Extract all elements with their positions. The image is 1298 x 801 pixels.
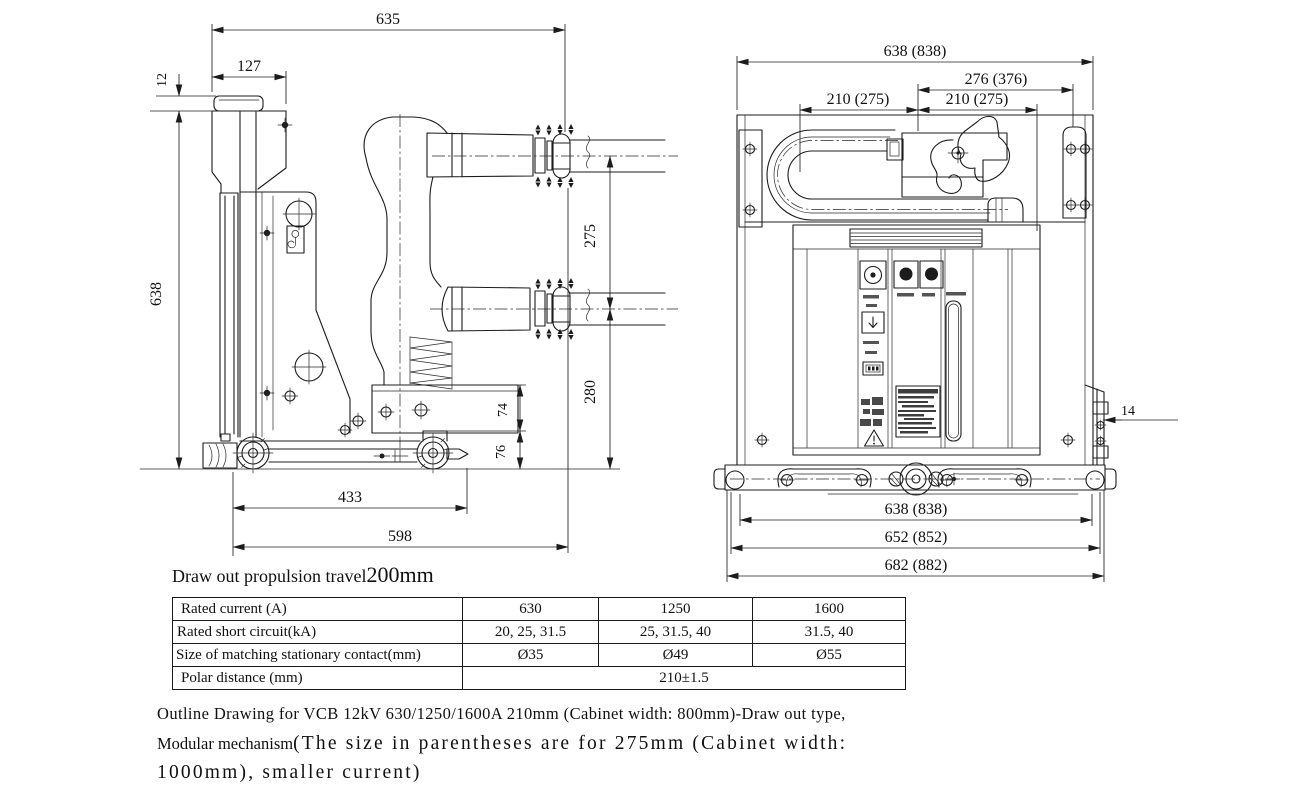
dim-base-mid: 652 (852): [885, 529, 948, 546]
caption-line-2-prefix: Modular mechanism: [157, 734, 293, 753]
side-view: 635 127 12 638 275 280 74 76 433 598: [140, 11, 678, 556]
latch-hook: [931, 140, 962, 193]
side-frame: [212, 96, 352, 437]
wheel: [233, 433, 273, 473]
table-row: Rated short circuit(kA) 20, 25, 31.5 25,…: [173, 621, 906, 644]
lower-bushing: [430, 278, 678, 340]
dim-lower-span: 280: [582, 380, 599, 404]
bumper: [203, 434, 237, 468]
front-dimensions: 638 (838) 276 (376) 210 (275) 210 (275) …: [727, 43, 1178, 582]
pole-assembly: [364, 114, 447, 448]
front-base: [714, 463, 1116, 495]
handle: [778, 469, 871, 487]
cell-value: Ø35: [463, 644, 599, 667]
table-row: Size of matching stationary contact(mm) …: [173, 644, 906, 667]
frame-bolts: [260, 118, 292, 400]
upper-bushing: [427, 124, 678, 188]
indicator-slot: [946, 301, 961, 441]
dim-height: 638: [148, 282, 165, 306]
cell-value: 630: [463, 598, 599, 621]
caption-line-1: Outline Drawing for VCB 12kV 630/1250/16…: [157, 704, 847, 724]
table-row: Rated current (A) 630 1250 1600: [173, 598, 906, 621]
drawing-caption: Outline Drawing for VCB 12kV 630/1250/16…: [157, 704, 847, 784]
dim-overall-width: 638 (838): [884, 43, 947, 60]
control-panel: [793, 225, 1040, 455]
vent-grille: [850, 229, 982, 247]
drawing-canvas: 635 127 12 638 275 280 74 76 433 598: [0, 0, 1298, 595]
selector-knob: [860, 261, 886, 289]
button-labels: [897, 292, 966, 297]
heater-loop: [767, 130, 1023, 222]
dim-base-inner: 638 (838): [885, 501, 948, 518]
front-view: 638 (838) 276 (376) 210 (275) 210 (275) …: [714, 43, 1178, 582]
dim-lift-offset: 276 (376): [965, 71, 1028, 88]
dim-base-height: 76: [494, 445, 509, 459]
propulsion-note: Draw out propulsion travel200mm: [172, 562, 434, 588]
dim-pitch-left: 210 (275): [827, 91, 890, 108]
propulsion-note-value: 200mm: [366, 562, 433, 587]
cell-value: Ø49: [599, 644, 753, 667]
operation-counter: [863, 362, 883, 375]
dim-box-height: 74: [496, 403, 511, 417]
dim-upper-span: 275: [582, 224, 599, 248]
dim-base-outer: 682 (882): [885, 557, 948, 574]
dim-frame-depth: 598: [388, 528, 412, 545]
row-label: Rated short circuit(kA): [173, 621, 463, 644]
dim-rail-width: 14: [1121, 404, 1135, 419]
dim-cap-depth: 127: [237, 58, 261, 75]
dim-pitch-right: 210 (275): [946, 91, 1009, 108]
row-label: Size of matching stationary contact(mm): [173, 644, 463, 667]
latch-cam: [958, 116, 1010, 181]
cell-value: 20, 25, 31.5: [463, 621, 599, 644]
warning-triangle-icon: [865, 430, 884, 446]
push-buttons: [894, 261, 943, 288]
ratings-table: Rated current (A) 630 1250 1600 Rated sh…: [172, 597, 906, 690]
table-row: Polar distance (mm) 210±1.5: [173, 667, 906, 690]
row-label: Polar distance (mm): [173, 667, 463, 690]
dim-base-length: 433: [338, 489, 362, 506]
drive-spring: [410, 337, 452, 389]
handle: [938, 469, 1031, 487]
outline-drawing: 635 127 12 638 275 280 74 76 433 598: [0, 0, 1298, 801]
trolley-base: [140, 413, 555, 473]
instruction-icons: [860, 397, 884, 426]
guide-rail: [1085, 385, 1108, 465]
lifting-hook-icon: [287, 226, 304, 253]
propulsion-note-text: Draw out propulsion travel: [172, 566, 366, 586]
dim-total-depth: 635: [376, 11, 400, 28]
cell-value: 1600: [753, 598, 906, 621]
cell-value: 25, 31.5, 40: [599, 621, 753, 644]
trip-button: [862, 312, 884, 333]
row-label: Rated current (A): [173, 598, 463, 621]
caption-line-3: 1000mm), smaller current): [157, 762, 847, 784]
cell-value: 210±1.5: [463, 667, 906, 690]
crosshair-holes: [282, 198, 352, 437]
cell-value: Ø55: [753, 644, 906, 667]
nameplate: [896, 386, 940, 437]
caption-line-2-rest: (The size in parentheses are for 275mm (…: [293, 733, 847, 754]
cell-value: 31.5, 40: [753, 621, 906, 644]
draw-out-pin: [447, 449, 468, 459]
cell-value: 1250: [599, 598, 753, 621]
dim-cap-offset: 12: [155, 73, 170, 87]
caption-line-2: Modular mechanism(The size in parenthese…: [157, 733, 847, 755]
